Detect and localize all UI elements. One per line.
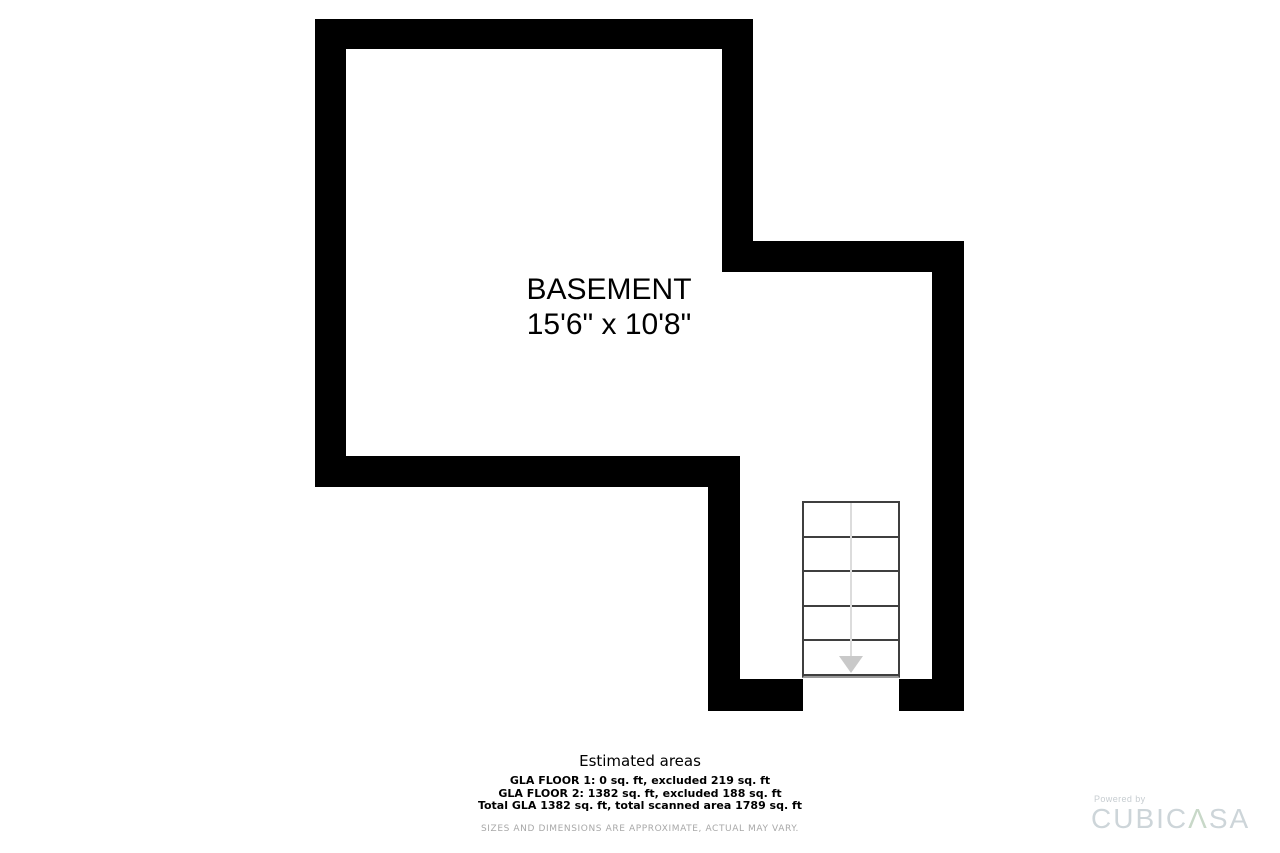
- estimated-areas-title: Estimated areas: [0, 752, 1280, 771]
- floorplan-page: BASEMENT 15'6" x 10'8" Estimated areas G…: [0, 0, 1280, 853]
- gla-floor-1-line: GLA FLOOR 1: 0 sq. ft, excluded 219 sq. …: [0, 775, 1280, 788]
- brand-caret-a-icon: Λ: [1188, 803, 1209, 834]
- wall-mid-vertical: [708, 456, 740, 711]
- brand-prefix: CUBIC: [1091, 803, 1188, 834]
- cubicasa-logo: Powered by CUBICΛSA: [1091, 794, 1250, 834]
- stair-down-arrow-icon: [839, 656, 863, 673]
- room-name: BASEMENT: [526, 272, 691, 307]
- cubicasa-wordmark: CUBICΛSA: [1091, 804, 1250, 834]
- gla-total-line: Total GLA 1382 sq. ft, total scanned are…: [0, 800, 1280, 813]
- wall-right-section-top: [722, 241, 964, 272]
- brand-suffix: SA: [1209, 803, 1250, 834]
- room-label: BASEMENT 15'6" x 10'8": [526, 272, 691, 342]
- wall-right-outer: [932, 241, 964, 711]
- estimated-areas-block: Estimated areas GLA FLOOR 1: 0 sq. ft, e…: [0, 752, 1280, 813]
- wall-main-room-bottom: [315, 456, 740, 487]
- stair-guide-line: [850, 503, 852, 658]
- wall-top: [315, 19, 753, 49]
- wall-bottom-right-segment: [899, 679, 964, 711]
- room-dimensions: 15'6" x 10'8": [526, 307, 691, 342]
- wall-left: [315, 19, 346, 487]
- wall-main-room-right: [722, 19, 753, 272]
- staircase: [802, 501, 900, 678]
- disclaimer-text: SIZES AND DIMENSIONS ARE APPROXIMATE, AC…: [0, 824, 1280, 834]
- wall-bottom-left-segment: [708, 679, 803, 711]
